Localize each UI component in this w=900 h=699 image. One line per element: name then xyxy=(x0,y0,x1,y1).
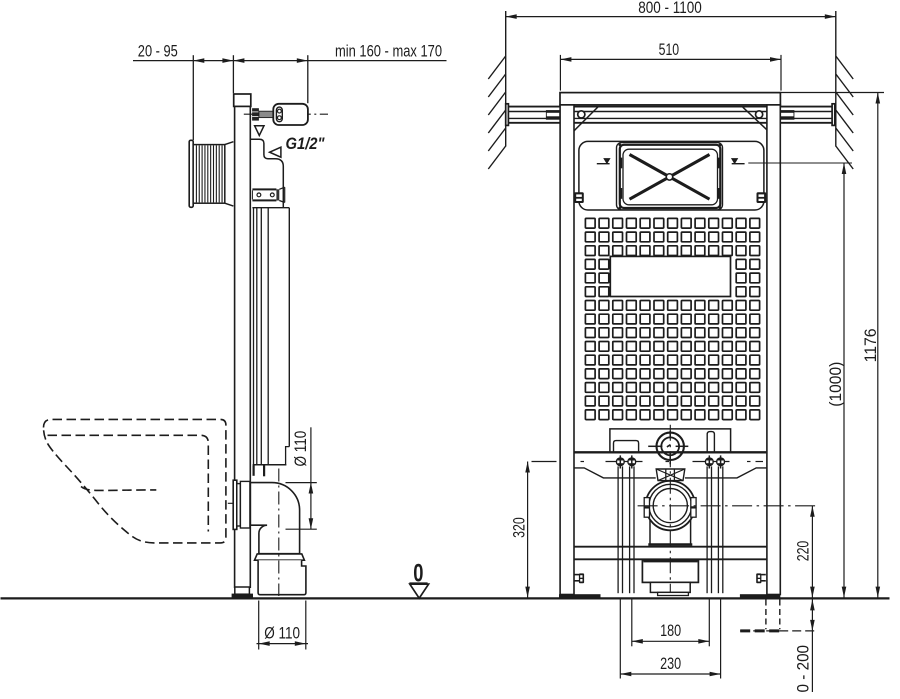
svg-text:510: 510 xyxy=(659,41,680,59)
svg-text:20 - 95: 20 - 95 xyxy=(138,42,178,60)
svg-text:G1/2": G1/2" xyxy=(286,134,326,153)
svg-text:(1000): (1000) xyxy=(827,362,845,407)
svg-text:230: 230 xyxy=(660,655,681,673)
svg-text:min 160 - max 170: min 160 - max 170 xyxy=(335,43,442,61)
svg-text:180: 180 xyxy=(660,622,681,640)
svg-text:320: 320 xyxy=(511,517,529,538)
svg-text:Ø 110: Ø 110 xyxy=(264,624,300,642)
svg-text:220: 220 xyxy=(795,541,813,562)
svg-text:Ø 110: Ø 110 xyxy=(292,431,310,467)
svg-text:1176: 1176 xyxy=(862,328,880,362)
svg-text:800 - 1100: 800 - 1100 xyxy=(638,0,702,17)
svg-text:0 - 200: 0 - 200 xyxy=(795,645,813,693)
